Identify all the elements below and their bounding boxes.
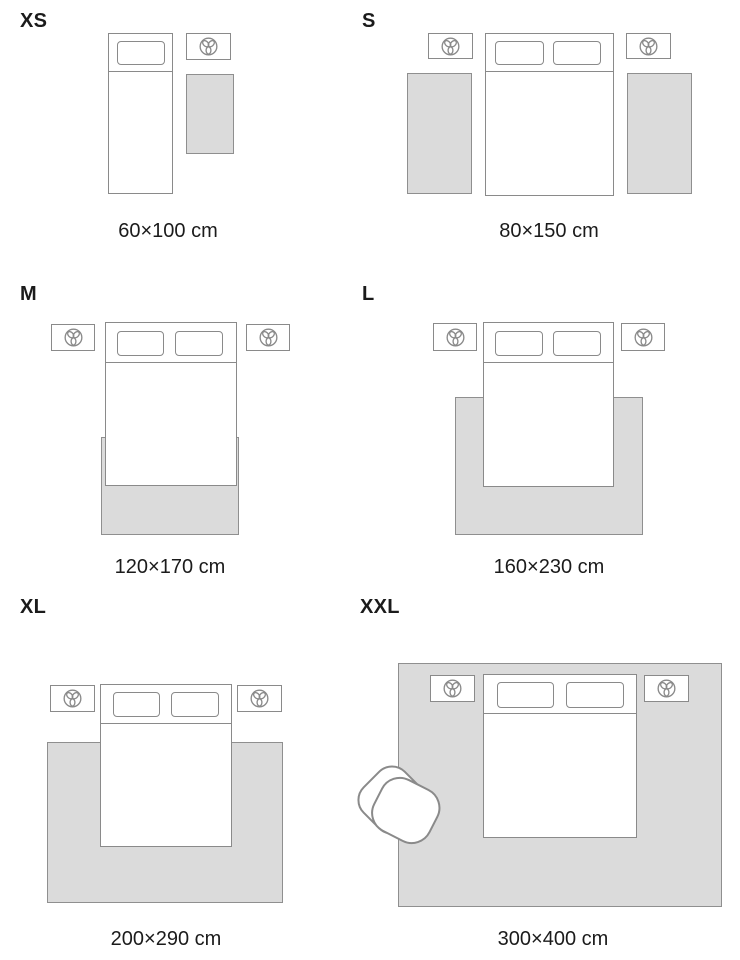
- pillow: [566, 682, 624, 708]
- plant-icon: [444, 326, 467, 349]
- nightstand-left: [50, 685, 95, 712]
- nightstand-right: [237, 685, 282, 712]
- size-caption-xs: 60×100 cm: [118, 220, 218, 242]
- size-label-m: M: [20, 283, 37, 305]
- rug: [186, 74, 234, 154]
- pillow: [175, 331, 223, 356]
- size-caption-xl: 200×290 cm: [111, 928, 222, 950]
- bed-double: [100, 684, 232, 847]
- rug-size-guide: XS 60×100 cm S: [0, 0, 740, 960]
- size-caption-s: 80×150 cm: [499, 220, 599, 242]
- rug-right: [627, 73, 692, 194]
- pillow: [497, 682, 554, 708]
- size-caption-xxl: 300×400 cm: [498, 928, 609, 950]
- plant-icon: [248, 687, 271, 710]
- pillow: [117, 41, 165, 65]
- armchair-icon: [356, 762, 446, 850]
- pillow: [553, 41, 601, 65]
- plant-icon: [197, 35, 220, 58]
- nightstand: [186, 33, 231, 60]
- bed-double: [483, 322, 614, 487]
- pillow: [171, 692, 219, 717]
- nightstand-left: [433, 323, 477, 351]
- bed-double: [485, 33, 614, 196]
- size-label-s: S: [362, 10, 376, 32]
- plant-icon: [632, 326, 655, 349]
- plant-icon: [62, 326, 85, 349]
- plant-icon: [61, 687, 84, 710]
- pillow: [117, 331, 164, 356]
- plant-icon: [257, 326, 280, 349]
- nightstand-right: [644, 675, 689, 702]
- bed-double: [105, 322, 237, 486]
- nightstand-left: [428, 33, 473, 59]
- rug-left: [407, 73, 472, 194]
- size-label-xs: XS: [20, 10, 47, 32]
- pillow: [495, 331, 543, 356]
- pillow: [495, 41, 544, 65]
- pillow: [113, 692, 160, 717]
- nightstand-left: [430, 675, 475, 702]
- size-label-xl: XL: [20, 596, 46, 618]
- nightstand-right: [626, 33, 671, 59]
- nightstand-right: [246, 324, 290, 351]
- plant-icon: [655, 677, 678, 700]
- bed-single: [108, 33, 173, 194]
- size-caption-m: 120×170 cm: [115, 556, 226, 578]
- size-label-l: L: [362, 283, 375, 305]
- size-label-xxl: XXL: [360, 596, 400, 618]
- pillow: [553, 331, 601, 356]
- nightstand-left: [51, 324, 95, 351]
- bed-double: [483, 674, 637, 838]
- size-caption-l: 160×230 cm: [494, 556, 605, 578]
- plant-icon: [637, 35, 660, 58]
- plant-icon: [441, 677, 464, 700]
- nightstand-right: [621, 323, 665, 351]
- plant-icon: [439, 35, 462, 58]
